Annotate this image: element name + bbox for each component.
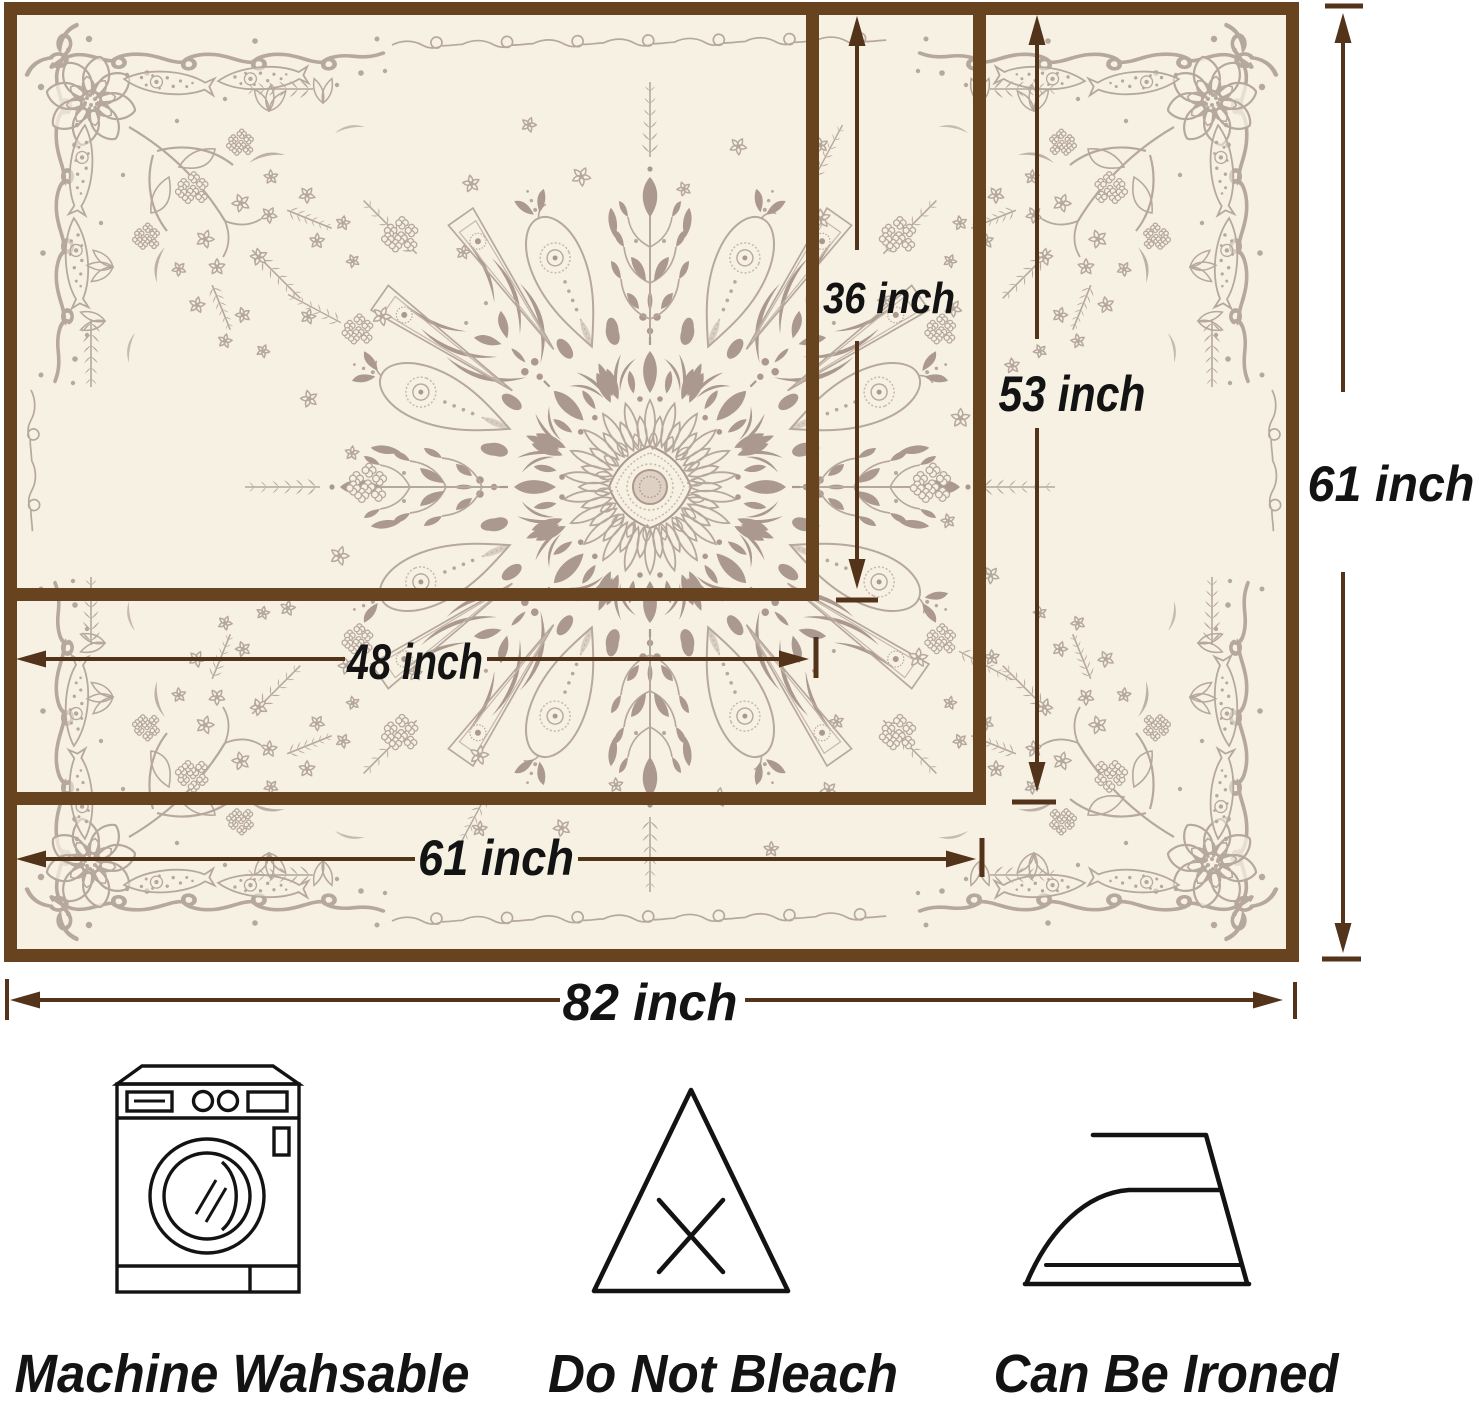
- svg-text:Machine Wahsable: Machine Wahsable: [15, 1344, 470, 1398]
- svg-text:82 inch: 82 inch: [563, 974, 738, 1032]
- svg-text:48 inch: 48 inch: [346, 634, 483, 690]
- svg-text:61 inch: 61 inch: [1308, 456, 1475, 512]
- svg-text:53 inch: 53 inch: [999, 366, 1146, 422]
- svg-text:Do Not Bleach: Do Not Bleach: [548, 1344, 898, 1398]
- svg-text:Can Be Ironed: Can Be Ironed: [994, 1344, 1340, 1398]
- svg-text:61 inch: 61 inch: [418, 830, 574, 886]
- svg-text:36 inch: 36 inch: [823, 274, 955, 323]
